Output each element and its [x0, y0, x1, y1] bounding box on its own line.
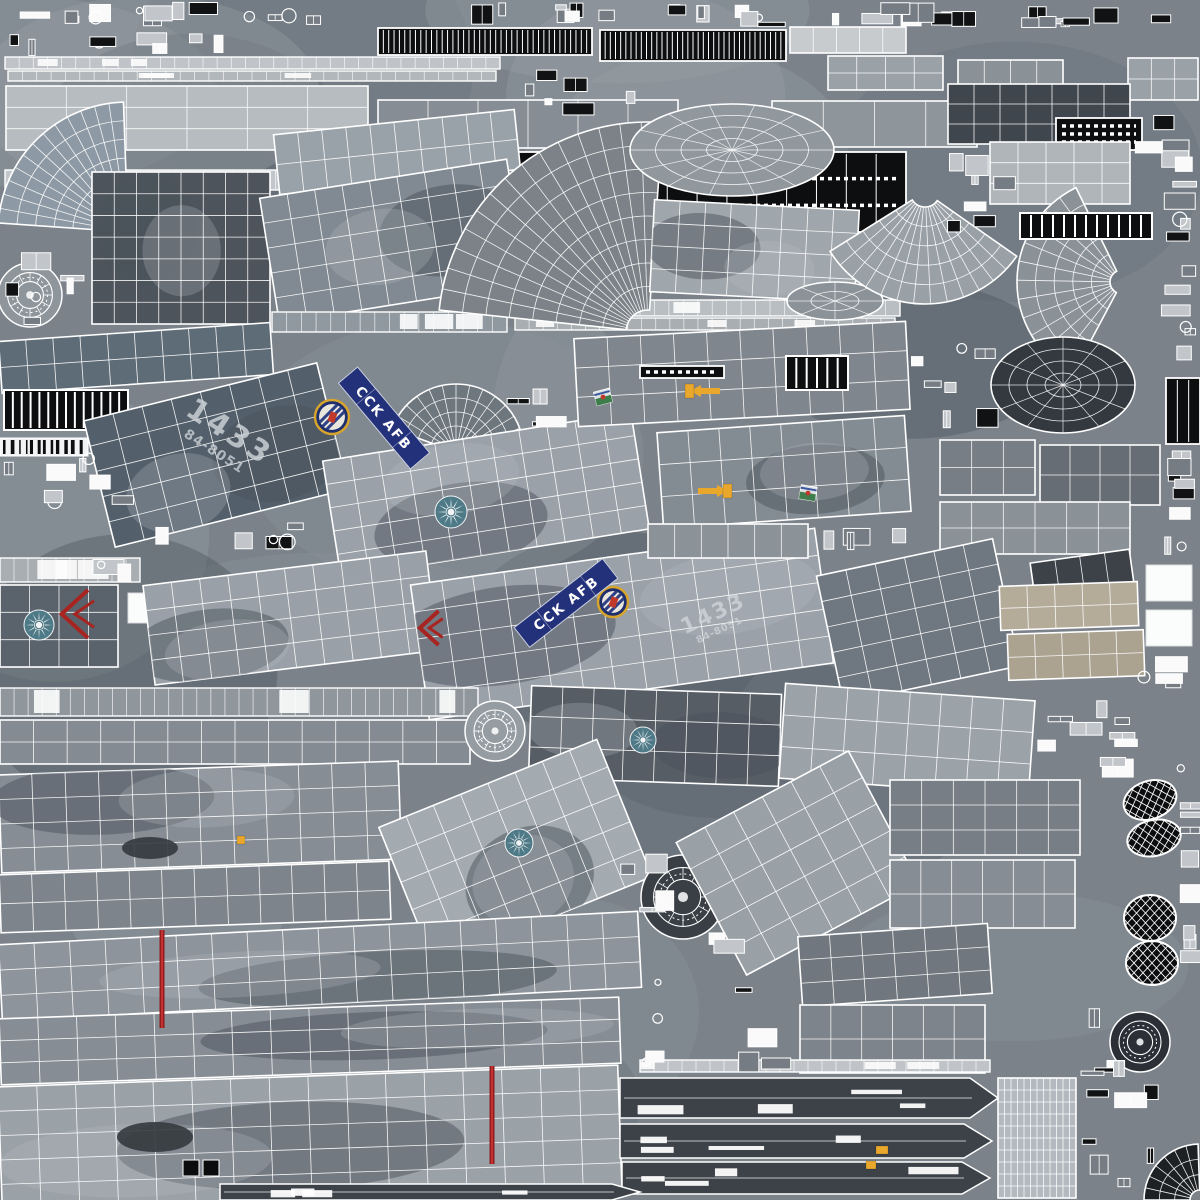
small-rect-part — [1115, 739, 1138, 746]
uv-island-panel — [940, 440, 1035, 495]
small-rect-part — [545, 99, 552, 105]
small-rect-part — [994, 177, 1016, 190]
small-rect-part — [499, 3, 506, 16]
uv-island-panel — [1128, 58, 1198, 100]
small-rect-part — [1063, 18, 1089, 25]
uv-island-panel — [574, 321, 910, 426]
uv-island-panel — [828, 56, 943, 90]
small-rect-part — [824, 531, 834, 549]
small-rect-part — [118, 564, 131, 582]
small-rect-part — [1181, 812, 1200, 817]
small-rect-part — [1081, 1071, 1104, 1075]
small-rect-part — [646, 854, 667, 873]
small-rect-part — [173, 2, 184, 19]
uv-island-dome — [991, 337, 1135, 433]
small-rect-part — [893, 529, 906, 543]
small-rect-part — [189, 3, 217, 15]
small-rect-part — [668, 5, 685, 15]
uv-island-panel — [1007, 630, 1145, 681]
small-rect-part — [1039, 16, 1056, 27]
uv-island-segment-bar — [1020, 213, 1152, 239]
small-rect-part — [932, 13, 954, 25]
red-stripe-decal — [490, 1066, 495, 1164]
uv-island-panel — [790, 27, 906, 53]
uv-island-strip — [272, 312, 507, 332]
dark-blotch — [122, 837, 178, 859]
small-rect-part — [1182, 266, 1195, 277]
small-rect-part — [112, 496, 133, 505]
yellow-accent-mark — [237, 836, 245, 844]
small-rect-part — [1038, 740, 1056, 751]
small-rect-part — [950, 154, 964, 171]
small-rect-part — [1082, 1139, 1096, 1144]
small-rect-part — [90, 37, 116, 47]
small-rect-part — [1151, 15, 1170, 23]
small-rect-part — [1184, 926, 1195, 940]
small-rect-part — [714, 939, 744, 953]
small-rect-part — [1154, 115, 1174, 129]
small-rect-part — [758, 22, 785, 26]
yellow-accent-mark — [876, 1146, 888, 1154]
small-rect-part — [1156, 674, 1183, 684]
small-rect-part — [556, 5, 567, 10]
small-rect-part — [1135, 142, 1162, 153]
small-rect-part — [741, 12, 758, 27]
small-rect-part — [621, 864, 635, 874]
small-rect-part — [565, 11, 579, 21]
uv-island-panel — [998, 1078, 1076, 1198]
small-rect-part — [1094, 8, 1118, 23]
small-rect-part — [735, 988, 752, 993]
uv-texture-atlas-svg: CCK AFBCCK AFB143384-8051143384-8051 — [0, 0, 1200, 1200]
small-rect-part — [1181, 951, 1200, 963]
small-rect-part — [862, 13, 893, 23]
small-rect-part — [65, 11, 78, 23]
small-rect-part — [90, 475, 110, 489]
small-rect-part — [748, 1029, 777, 1047]
small-rect-part — [1165, 285, 1190, 294]
small-rect-part — [646, 1051, 664, 1062]
small-rect-part — [1164, 193, 1195, 209]
roc-roundel-decal — [24, 610, 54, 640]
dark-slab-uv-island — [620, 1124, 992, 1158]
small-rect-part — [1175, 157, 1192, 171]
small-rect-part — [964, 202, 986, 211]
roc-roundel-decal — [630, 727, 656, 753]
small-rect-part — [44, 490, 62, 502]
small-rect-part — [145, 6, 172, 21]
uv-island-panel — [990, 142, 1130, 204]
dark-slab-uv-island — [620, 1078, 998, 1118]
small-rect-part — [1168, 458, 1191, 475]
uv-island-panel — [0, 585, 118, 667]
uv-island-panel — [0, 720, 470, 764]
uv-island-panel — [0, 1065, 622, 1200]
uv-island-panel — [890, 780, 1080, 855]
small-rect-part — [1173, 487, 1194, 498]
small-rect-part — [1087, 1090, 1109, 1097]
uv-island-panel — [999, 582, 1138, 631]
small-rect-part — [761, 1058, 790, 1069]
yellow-accent-mark — [866, 1161, 876, 1169]
uv-island-strip — [5, 57, 500, 69]
small-rect-part — [235, 533, 252, 549]
uv-island-dash-bar — [1166, 378, 1200, 444]
small-rect-part — [24, 317, 40, 324]
small-rect-part — [974, 216, 995, 227]
small-rect-part — [626, 91, 634, 103]
small-rect-part — [1097, 701, 1107, 718]
small-rect-part — [1156, 657, 1188, 672]
yellow-accent-mark — [685, 384, 694, 398]
small-rect-part — [881, 3, 910, 15]
small-rect-part — [966, 155, 989, 175]
uv-island-strip — [0, 688, 478, 716]
uv-island-panel — [798, 923, 992, 1006]
uv-island-segment-bar — [786, 356, 848, 390]
dark-slab-uv-island — [622, 1162, 990, 1194]
uv-island-dash-bar — [600, 30, 786, 61]
small-rect-part — [1175, 479, 1195, 488]
small-rect-part — [1115, 718, 1129, 725]
small-rect-part — [1181, 851, 1198, 867]
small-rect-part — [10, 35, 18, 46]
red-stripe-decal — [160, 930, 165, 1028]
yellow-accent-mark — [723, 484, 732, 498]
small-rect-part — [1177, 346, 1191, 360]
small-rect-part — [6, 283, 19, 296]
small-rect-part — [288, 523, 304, 530]
uv-island-dash-bar — [378, 28, 592, 55]
small-rect-part — [1180, 885, 1200, 903]
uv-island-panel — [1040, 445, 1160, 505]
uv-island-dome — [630, 104, 834, 196]
uv-island-panel — [648, 524, 808, 558]
small-rect-part — [1161, 305, 1190, 316]
white-block-uv-island — [1146, 610, 1192, 646]
uv-island-strip — [8, 71, 496, 81]
small-rect-part — [924, 381, 941, 387]
uv-texture-atlas: CCK AFBCCK AFB143384-8051143384-8051 — [0, 0, 1200, 1200]
small-rect-part — [599, 10, 614, 20]
small-rect-part — [1173, 181, 1197, 187]
white-block-uv-island — [1146, 565, 1192, 601]
intake-patch-decal — [799, 485, 817, 502]
uv-island-panel — [92, 172, 270, 324]
small-rect-part — [1167, 232, 1190, 241]
small-rect-part — [912, 357, 923, 366]
small-rect-part — [563, 103, 594, 115]
roc-roundel-decal — [435, 496, 467, 528]
black-square-part — [203, 1160, 219, 1176]
uv-island-dash-bar — [640, 366, 724, 378]
small-rect-part — [1170, 508, 1191, 520]
small-rect-part — [948, 220, 961, 232]
uv-island-panel — [657, 415, 911, 528]
small-rect-part — [156, 527, 168, 544]
black-square-part — [183, 1160, 199, 1176]
uv-island-strip — [640, 1060, 990, 1072]
small-rect-part — [20, 12, 49, 18]
small-rect-part — [945, 382, 956, 392]
small-rect-part — [698, 6, 705, 19]
uv-island-barcode — [0, 438, 88, 456]
small-rect-part — [67, 278, 73, 294]
small-rect-part — [536, 417, 566, 427]
roc-roundel-decal — [505, 829, 533, 857]
small-rect-part — [537, 70, 557, 80]
small-rect-part — [656, 891, 674, 911]
small-rect-part — [739, 1052, 759, 1072]
small-rect-part — [525, 84, 533, 96]
small-rect-part — [977, 409, 998, 428]
wheel-hub-uv-island — [465, 701, 525, 761]
small-rect-part — [214, 35, 223, 52]
small-rect-part — [190, 34, 202, 43]
uv-island-panel — [890, 860, 1075, 928]
small-rect-part — [47, 464, 76, 480]
small-rect-part — [137, 33, 167, 45]
dark-blotch — [117, 1122, 193, 1152]
dark-slab-uv-island — [220, 1184, 640, 1200]
